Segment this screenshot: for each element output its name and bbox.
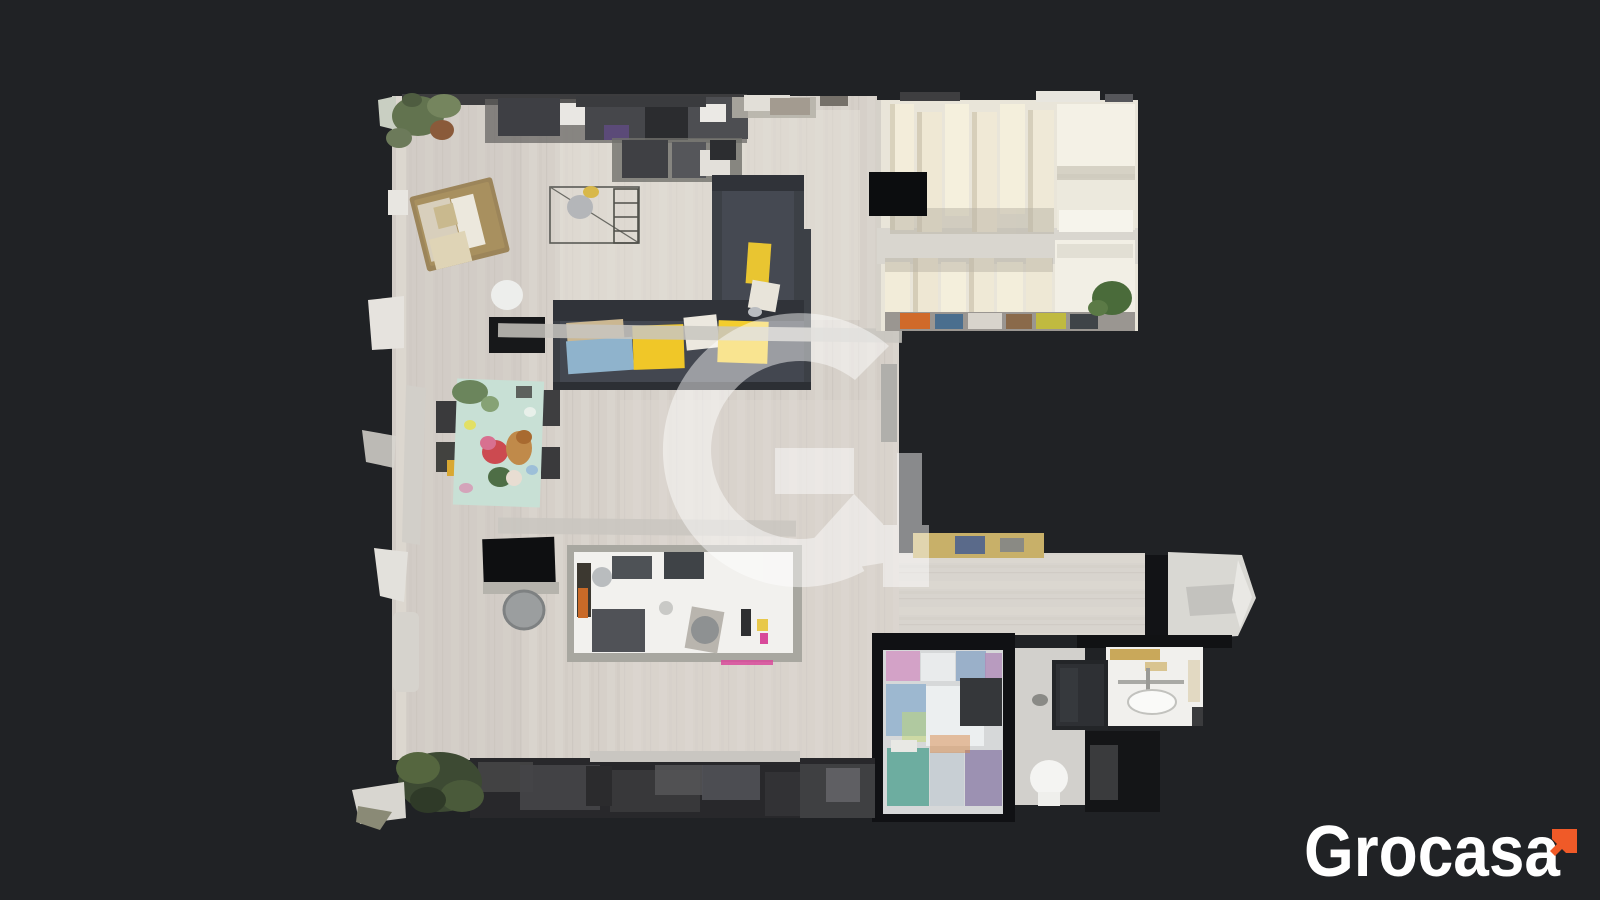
svg-text:Grocasa: Grocasa — [1304, 811, 1561, 892]
